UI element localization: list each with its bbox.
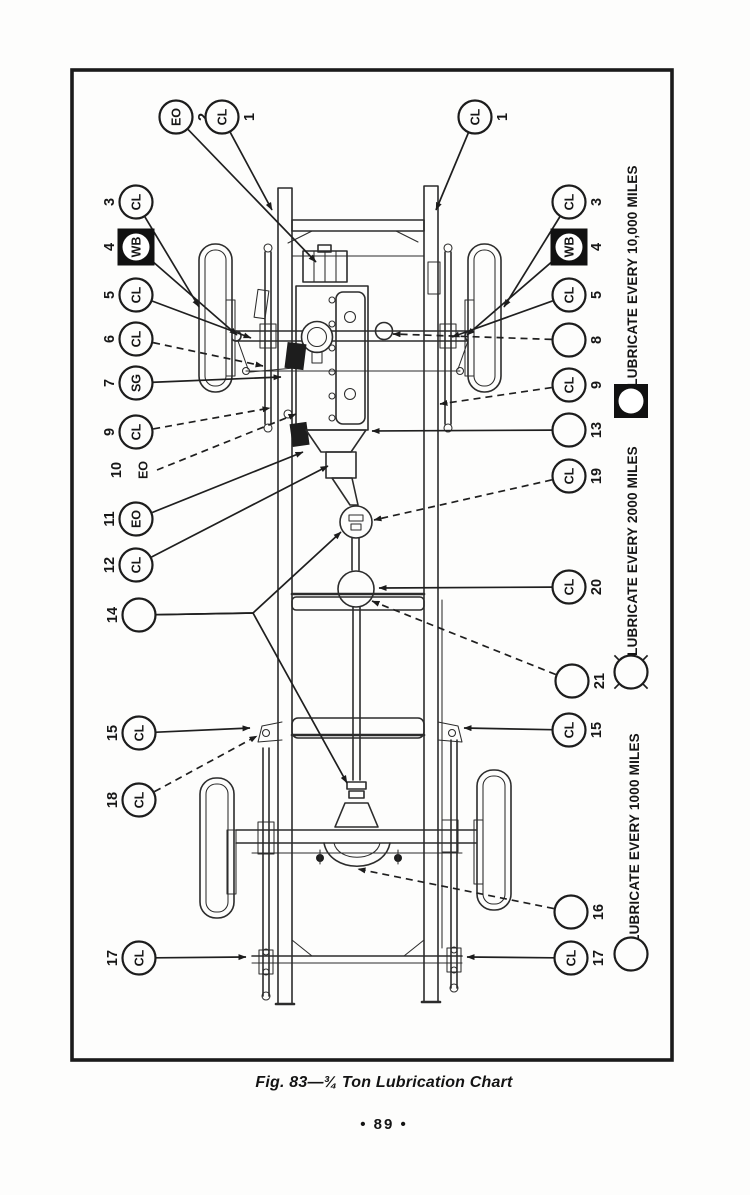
callout-19-22: CL19 [374, 460, 605, 521]
lubrication-chart-figure: EO2CL1CL1CL3WB4CL5CL6SG7CL9EO10EO11CL121… [0, 0, 750, 1195]
wheel-front-right [468, 244, 501, 392]
u-joint-front [340, 506, 372, 538]
legend-label-10000-miles: LUBRICATE EVERY 10,000 MILES [625, 165, 640, 386]
figure-caption: Fig. 83—¾ Ton Lubrication Chart [255, 1074, 513, 1091]
leader-line [188, 130, 316, 262]
callout-code: EO [170, 108, 184, 126]
callout-code: CL [563, 376, 577, 393]
callout-code: CL [469, 108, 483, 125]
callout-code: WB [130, 237, 144, 258]
center-bearing [338, 571, 374, 607]
leader-line [152, 452, 303, 512]
callout-1-1: CL1 [206, 101, 273, 211]
callout-number: 9 [102, 428, 118, 436]
legend-label-1000-miles: LUBRICATE EVERY 1000 MILES [627, 733, 642, 943]
callout-1-2: CL1 [436, 101, 511, 211]
callout-number: 12 [102, 557, 118, 573]
callout-number: 3 [589, 198, 605, 206]
callout-15-13: CL15 [105, 717, 250, 750]
leader-line [372, 430, 552, 431]
callout-circle [553, 324, 586, 357]
interval-legend: LUBRICATE EVERY 10,000 MILES LUBRICATE E… [614, 165, 648, 970]
callout-circle [555, 896, 588, 929]
callout-number: 10 [109, 462, 125, 478]
leader-line [374, 480, 552, 520]
callout-number: 17 [591, 950, 607, 966]
leader-line [152, 466, 328, 557]
callout-number: 16 [591, 904, 607, 920]
frame-rail-left [278, 188, 292, 1004]
callout-number: 4 [102, 243, 118, 251]
callout-code: CL [563, 193, 577, 210]
callout-9-8: CL9 [102, 408, 270, 449]
callout-code: CL [563, 578, 577, 595]
leader-line [156, 613, 347, 783]
drivetrain [306, 430, 378, 827]
legend-symbol-1000-miles [615, 938, 648, 971]
callout-number: 18 [105, 792, 121, 808]
callout-circle [553, 414, 586, 447]
wheel-front-left [199, 244, 232, 392]
differential [324, 843, 390, 866]
callout-number: 8 [589, 336, 605, 344]
callout-number: 14 [105, 607, 121, 623]
callout-code: CL [565, 949, 579, 966]
callout-number: 11 [102, 511, 118, 526]
bell-housing [306, 430, 366, 452]
legend-symbol-10000-miles [614, 384, 648, 418]
steering-gear [284, 342, 306, 370]
chassis-drawing [199, 186, 511, 1004]
callout-code: EO [130, 510, 144, 528]
callout-number: 1 [495, 113, 511, 121]
callout-circle [123, 599, 156, 632]
pedal-linkage [290, 422, 310, 447]
callout-20-23: CL20 [379, 571, 605, 604]
leader-line [452, 301, 553, 337]
legend-symbol-2000-miles [614, 655, 647, 688]
page-number: • 89 • [360, 1116, 408, 1133]
leader-line [358, 869, 554, 909]
callout-code: EO [137, 461, 151, 479]
callout-15-25: CL15 [464, 714, 605, 747]
callout-code: CL [130, 330, 144, 347]
callout-code: CL [563, 286, 577, 303]
callout-17-15: CL17 [105, 942, 246, 975]
callout-number: 19 [589, 468, 605, 484]
callout-number: 5 [589, 291, 605, 299]
callout-code: CL [130, 193, 144, 210]
legend-label-2000-miles: LUBRICATE EVERY 2000 MILES [625, 446, 640, 656]
callout-code: CL [130, 286, 144, 303]
wheels [199, 244, 511, 918]
leader-line [153, 408, 270, 429]
leader-line [372, 601, 556, 675]
callout-code: CL [133, 724, 147, 741]
callout-number: 20 [589, 579, 605, 595]
torque-tube [335, 803, 378, 827]
callout-code: CL [216, 108, 230, 125]
manual-page: EO2CL1CL1CL3WB4CL5CL6SG7CL9EO10EO11CL121… [0, 0, 750, 1195]
callout-number: 9 [589, 381, 605, 389]
callout-number: 1 [242, 113, 258, 121]
callout-number: 15 [589, 722, 605, 738]
u-joint-rear [347, 782, 366, 789]
callout-code: SG [130, 374, 144, 392]
callout-circle [556, 665, 589, 698]
callout-13-21: 13 [372, 414, 605, 447]
transmission [326, 452, 356, 478]
wheel-rear-right [477, 770, 511, 910]
engine-assembly [284, 245, 393, 447]
leader-line [157, 414, 296, 470]
shock-absorber [254, 289, 269, 318]
callout-number: 13 [589, 422, 605, 438]
callout-number: 4 [589, 243, 605, 251]
callout-code: CL [563, 721, 577, 738]
callout-code: CL [130, 423, 144, 440]
leader-line [467, 957, 554, 958]
callout-number: 21 [592, 673, 608, 689]
frame-rail-right [424, 186, 438, 1002]
callout-code: CL [563, 467, 577, 484]
callout-code: CL [133, 949, 147, 966]
leader-line [436, 133, 468, 210]
wheel-rear-left [200, 778, 234, 918]
leader-line [440, 388, 552, 404]
leader-line [464, 728, 552, 730]
callout-number: 6 [102, 335, 118, 343]
callout-code: WB [563, 237, 577, 258]
callout-number: 3 [102, 198, 118, 206]
callout-17-27: CL17 [467, 942, 607, 975]
leader-line [156, 532, 341, 615]
leader-line [379, 587, 552, 588]
leader-line [156, 957, 246, 958]
rear-axle [236, 830, 476, 866]
engine-block [296, 286, 368, 430]
callout-number: 15 [105, 725, 121, 741]
callout-code: CL [133, 791, 147, 808]
callout-number: 7 [102, 379, 118, 387]
leader-line [230, 132, 272, 210]
callout-code: CL [130, 556, 144, 573]
callout-number: 5 [102, 291, 118, 299]
leader-line [156, 728, 250, 732]
callout-number: 17 [105, 950, 121, 966]
air-cleaner [302, 322, 333, 353]
callout-21-24: 21 [372, 601, 608, 698]
